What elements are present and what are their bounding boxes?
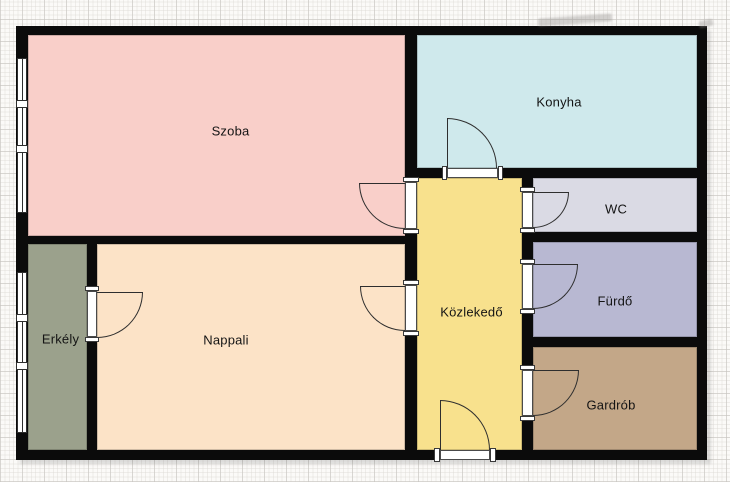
pencil-smudge-1 [698,19,713,29]
entrance-door-jamb-0 [434,448,440,462]
konyha-door-jamb-1 [498,166,503,180]
nappali-door-opening [405,285,417,331]
room-nappali [97,244,405,450]
entrance-door-jamb-1 [490,448,496,462]
erkely-door-opening [87,291,97,337]
konyha-door-opening [447,168,498,178]
wc-door-opening [522,192,533,228]
wc-door-jamb-1 [520,228,535,233]
erkely-window-mullion-0 [16,314,28,322]
room-label-furdo: Fürdő [598,293,633,308]
erkely-window [17,272,27,433]
floorplan-canvas: SzobaKonyhaWCFürdőGardróbKözlekedőNappal… [0,0,730,482]
room-label-kozlekedo: Közlekedő [440,305,503,320]
wc-door-jamb-0 [520,187,535,192]
erkely-window-mullion-1 [16,362,28,370]
gardrob-door-jamb-1 [520,416,535,421]
room-label-erkely: Erkély [42,332,79,347]
room-label-konyha: Konyha [536,94,581,109]
konyha-door-jamb-0 [442,166,447,180]
szoba-door-opening [405,182,417,229]
furdo-door-opening [522,264,533,309]
nappali-door-jamb-1 [403,331,419,336]
furdo-door-jamb-0 [520,259,535,264]
room-erkely [28,244,87,450]
pencil-smudge-0 [538,13,612,26]
gardrob-door-opening [522,370,533,416]
szoba-window-mullion-0 [16,100,28,108]
room-label-gardrob: Gardrób [586,397,635,412]
erkely-window-centerline [22,273,23,432]
entrance-door-opening [440,450,490,460]
furdo-door-jamb-1 [520,309,535,314]
szoba-window [17,58,27,213]
szoba-window-mullion-1 [16,145,28,153]
floorplan: SzobaKonyhaWCFürdőGardróbKözlekedőNappal… [16,26,707,460]
room-label-szoba: Szoba [212,123,250,138]
nappali-door-jamb-0 [403,280,419,285]
szoba-door-jamb-1 [403,229,419,234]
szoba-window-centerline [22,59,23,212]
erkely-door-jamb-1 [85,337,99,342]
gardrob-door-jamb-0 [520,365,535,370]
szoba-door-jamb-0 [403,177,419,182]
room-label-wc: WC [605,202,627,217]
room-label-nappali: Nappali [203,333,249,348]
erkely-door-jamb-0 [85,286,99,291]
